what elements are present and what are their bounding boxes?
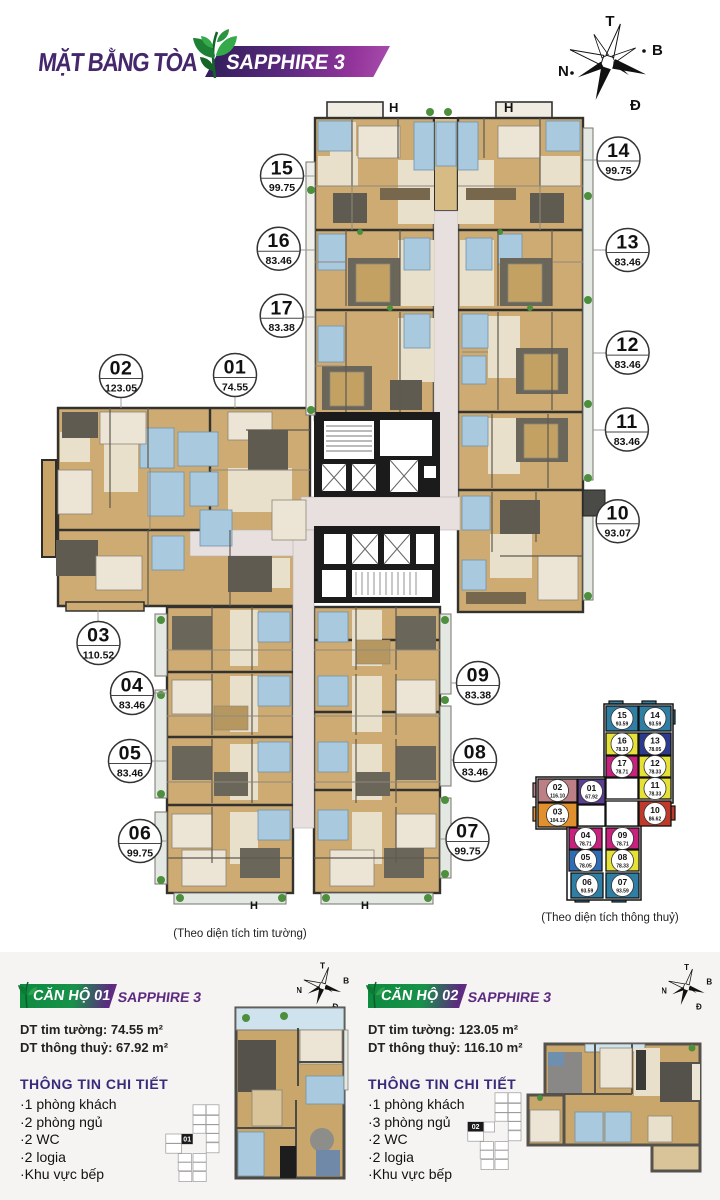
svg-text:Đ: Đ xyxy=(696,1003,702,1012)
svg-text:01: 01 xyxy=(183,1137,191,1144)
svg-text:02: 02 xyxy=(472,1124,480,1131)
svg-text:N: N xyxy=(662,987,667,996)
svg-text:T: T xyxy=(684,963,689,972)
svg-text:B: B xyxy=(706,978,712,987)
